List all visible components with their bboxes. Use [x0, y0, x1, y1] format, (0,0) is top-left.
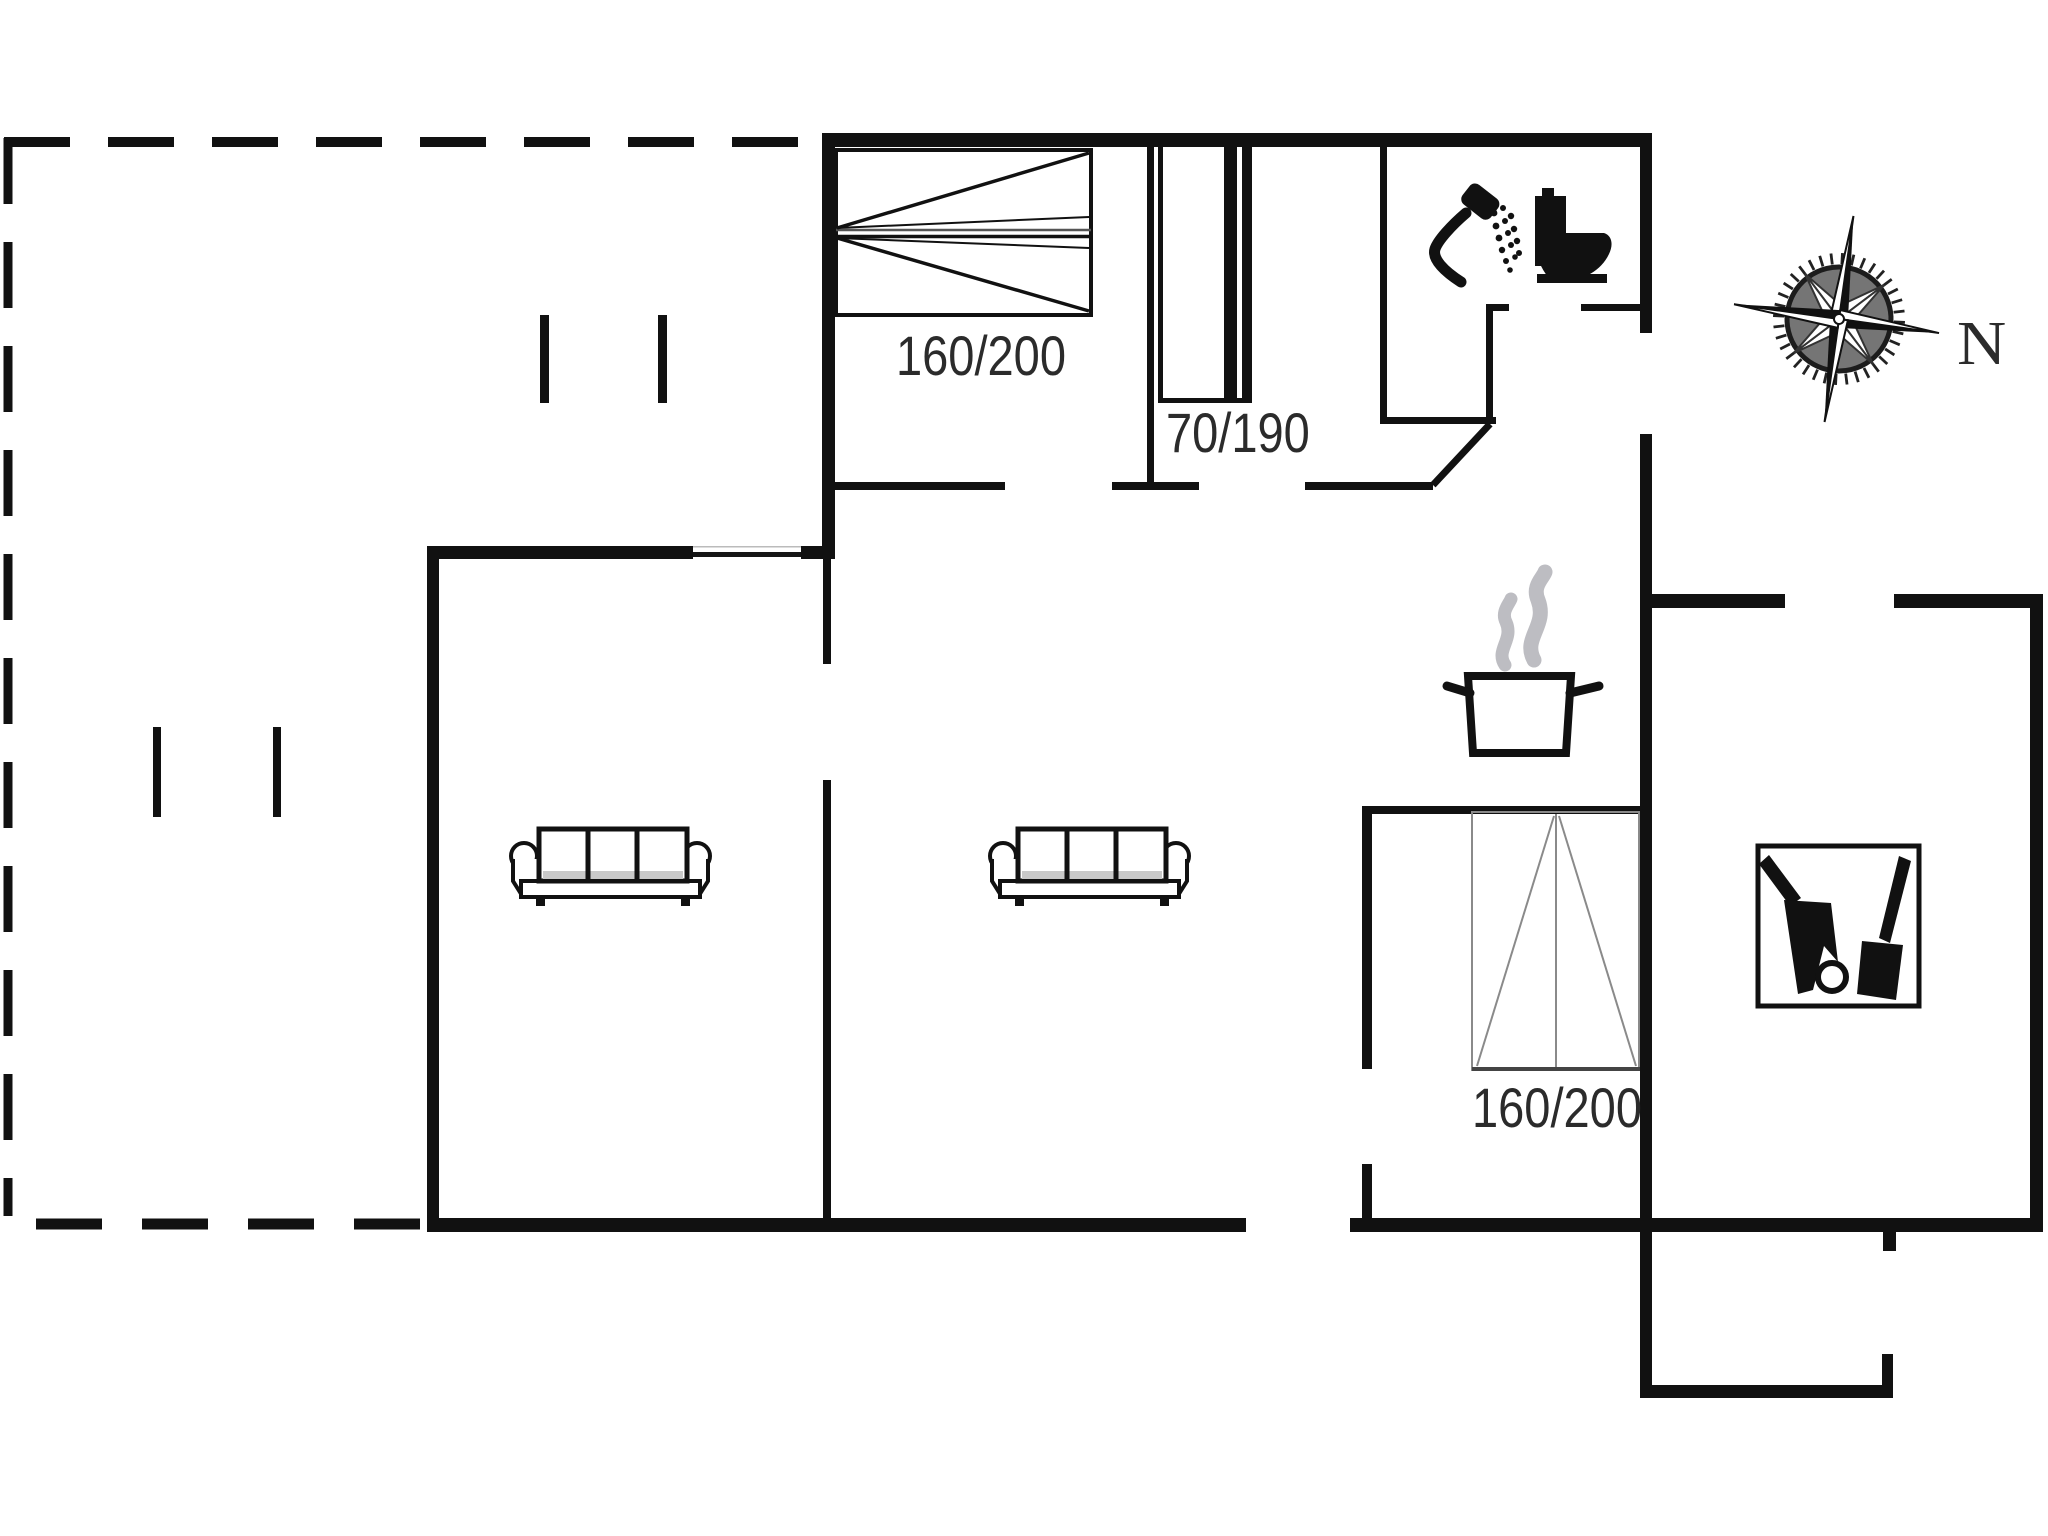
svg-text:160/200: 160/200	[896, 324, 1066, 387]
svg-text:70/190: 70/190	[1166, 401, 1310, 464]
svg-text:160/200: 160/200	[1472, 1076, 1642, 1139]
svg-text:N: N	[1957, 310, 2006, 378]
